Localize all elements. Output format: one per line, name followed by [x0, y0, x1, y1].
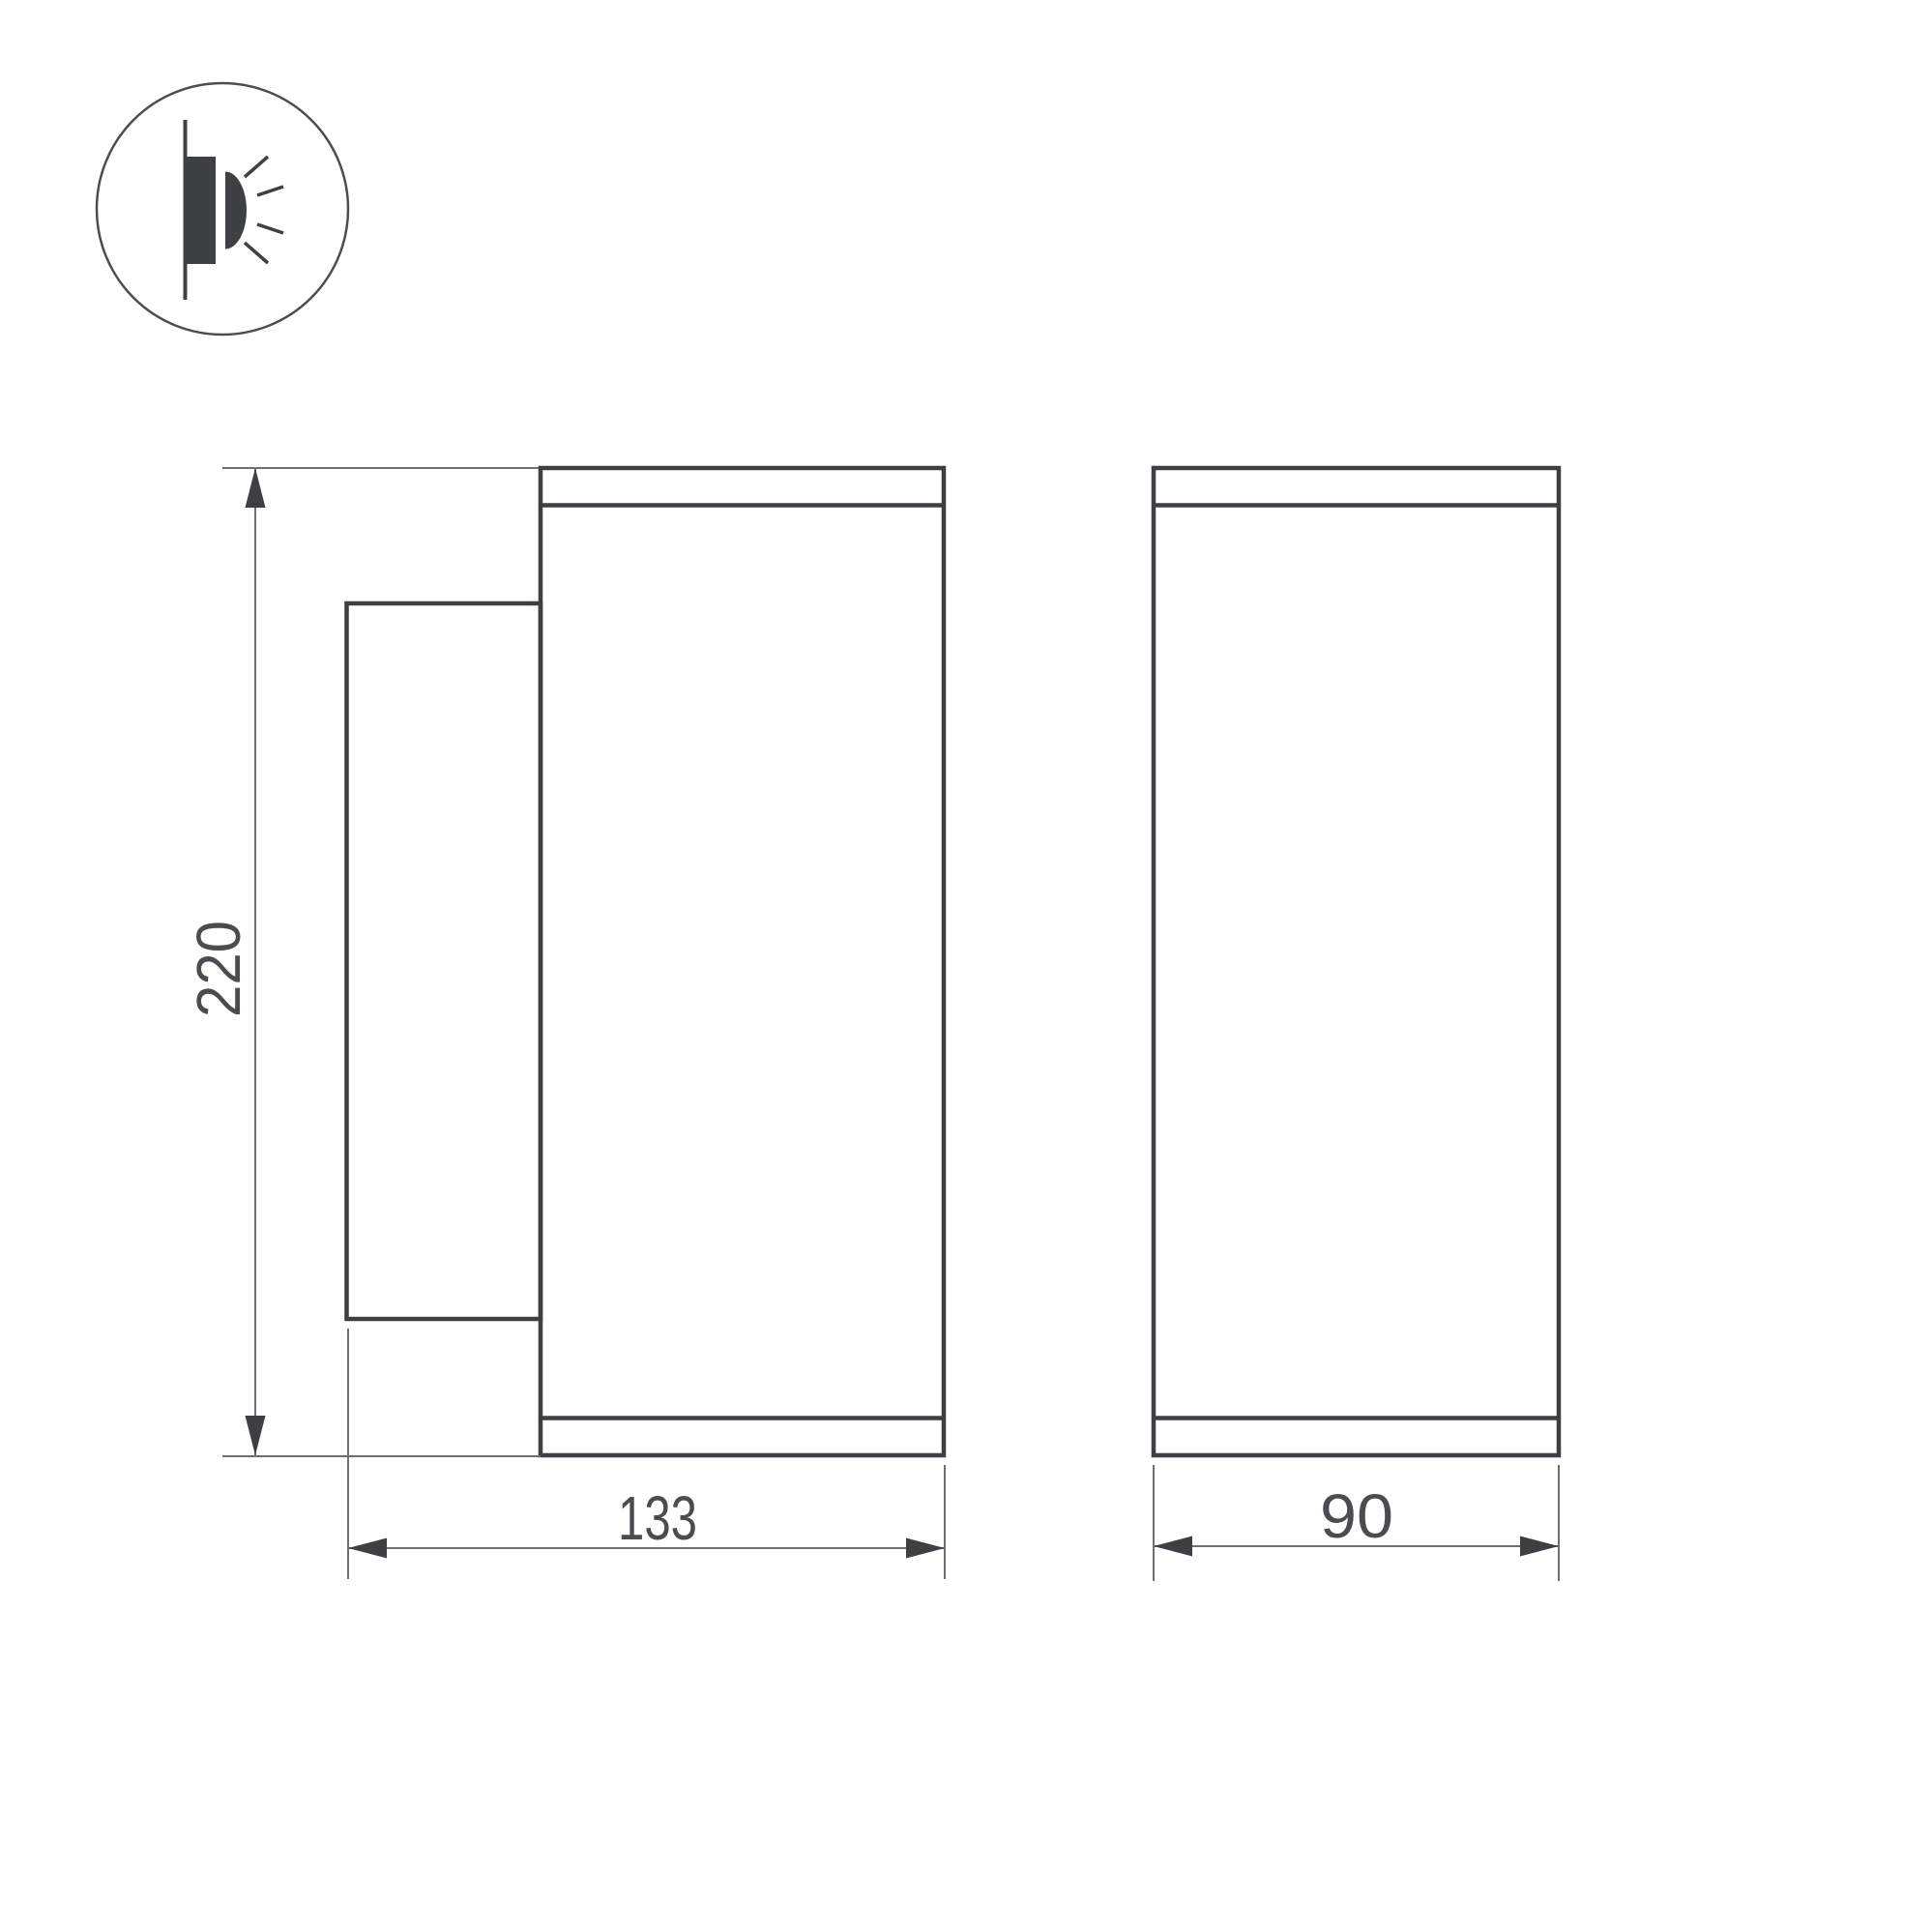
front-view — [1154, 468, 1559, 1455]
wall-light-icon — [97, 83, 348, 335]
height-dimension-label: 220 — [184, 921, 253, 1017]
front-view-outline — [1154, 468, 1559, 1455]
icon-light-ray — [257, 187, 283, 195]
side-view-outline — [541, 468, 944, 1455]
technical-drawing-canvas: 220 133 90 — [0, 0, 1932, 1932]
drawing-svg: 220 133 90 — [0, 0, 1932, 1932]
side-view — [347, 468, 945, 1455]
depth-dimension-arrow-left — [348, 1538, 387, 1559]
depth-dimension-label: 133 — [618, 1483, 697, 1553]
side-view-mount-plate — [347, 603, 542, 1319]
depth-dimension-arrow-right — [906, 1538, 945, 1559]
icon-circle — [97, 83, 348, 335]
icon-light-ray — [245, 243, 268, 263]
height-dimension: 220 — [184, 468, 541, 1456]
width-dimension-arrow-left — [1154, 1537, 1192, 1557]
icon-light-lens — [225, 172, 247, 249]
width-dimension-label: 90 — [1320, 1481, 1393, 1551]
icon-fixture-body — [187, 157, 216, 264]
height-dimension-arrow-up — [246, 468, 266, 508]
icon-light-ray — [257, 224, 283, 233]
width-dimension: 90 — [1154, 1465, 1559, 1581]
width-dimension-arrow-right — [1520, 1537, 1559, 1557]
icon-light-ray — [245, 157, 268, 177]
height-dimension-arrow-down — [246, 1416, 266, 1455]
